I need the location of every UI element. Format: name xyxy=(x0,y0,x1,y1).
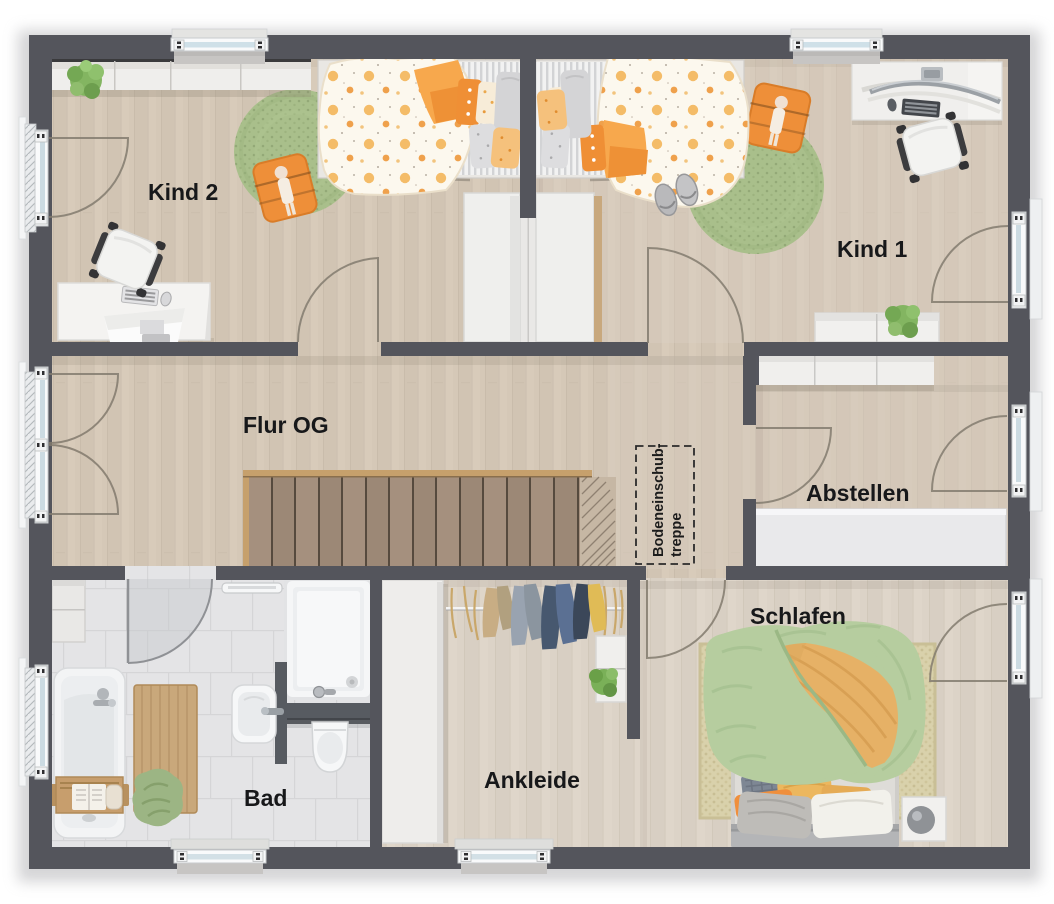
svg-text:Schlafen: Schlafen xyxy=(750,603,846,629)
svg-text:treppe: treppe xyxy=(669,513,685,557)
svg-text:Kind 1: Kind 1 xyxy=(837,236,907,262)
svg-text:Kind 2: Kind 2 xyxy=(148,179,218,205)
svg-text:Bad: Bad xyxy=(244,785,287,811)
svg-text:Ankleide: Ankleide xyxy=(484,767,580,793)
svg-text:Abstellen: Abstellen xyxy=(806,480,910,506)
svg-text:Flur OG: Flur OG xyxy=(243,412,329,438)
svg-text:Bodeneinschub-: Bodeneinschub- xyxy=(651,443,667,557)
